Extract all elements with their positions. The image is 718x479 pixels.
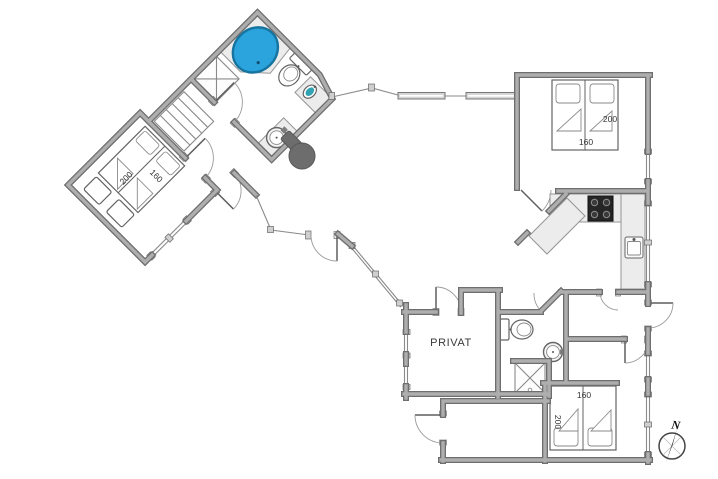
privat-label: PRIVAT bbox=[430, 337, 472, 349]
compass-north-label: N bbox=[670, 417, 683, 432]
bed-bottom-right: 160 200 bbox=[550, 386, 616, 450]
pillow bbox=[590, 84, 614, 103]
door-bedroom-tr bbox=[521, 190, 551, 211]
window-southwest-2 bbox=[349, 243, 403, 308]
floorplan-svg: 200 160 bbox=[0, 0, 718, 479]
pillow bbox=[556, 84, 580, 103]
toilet-icon bbox=[500, 319, 533, 340]
bed-top-right: 200 160 bbox=[552, 80, 618, 150]
floorplan-page: 200 160 bbox=[0, 0, 718, 479]
window-bedroom-br bbox=[645, 392, 652, 457]
bed-length-label: 200 bbox=[603, 114, 617, 124]
living-room-glazing bbox=[256, 84, 516, 307]
bed-width-label: 160 bbox=[579, 137, 593, 147]
stairs-icon bbox=[154, 92, 213, 151]
cooktop-icon bbox=[588, 196, 613, 221]
window-southwest-1 bbox=[256, 195, 309, 235]
door-terrace-south bbox=[311, 232, 352, 262]
kitchen-sink-icon bbox=[625, 237, 643, 258]
bed-width-label: 160 bbox=[577, 390, 591, 400]
window-kitchen bbox=[645, 201, 652, 287]
bed-length-label: 200 bbox=[553, 415, 563, 429]
bathroom-middle bbox=[500, 293, 566, 393]
compass-icon: N bbox=[659, 417, 685, 462]
bedroom-bottom-right: 160 200 bbox=[550, 386, 652, 457]
shower-icon bbox=[515, 363, 545, 393]
